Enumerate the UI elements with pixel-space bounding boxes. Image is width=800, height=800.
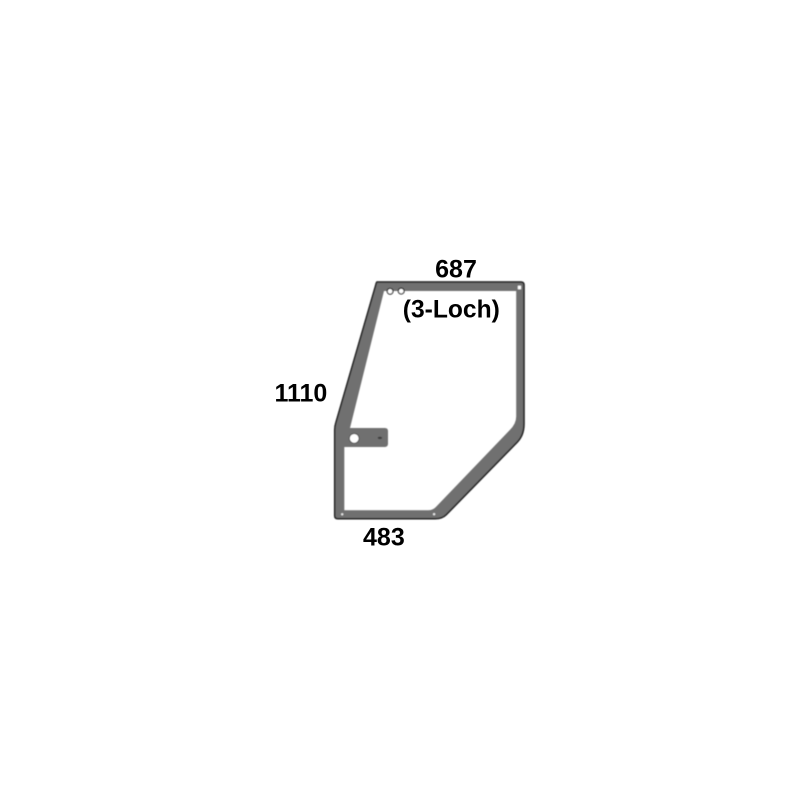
svg-text:483: 483 <box>363 523 405 551</box>
svg-text:1110: 1110 <box>274 379 327 407</box>
svg-text:687: 687 <box>435 256 477 284</box>
svg-text:(3-Loch): (3-Loch) <box>403 296 500 323</box>
